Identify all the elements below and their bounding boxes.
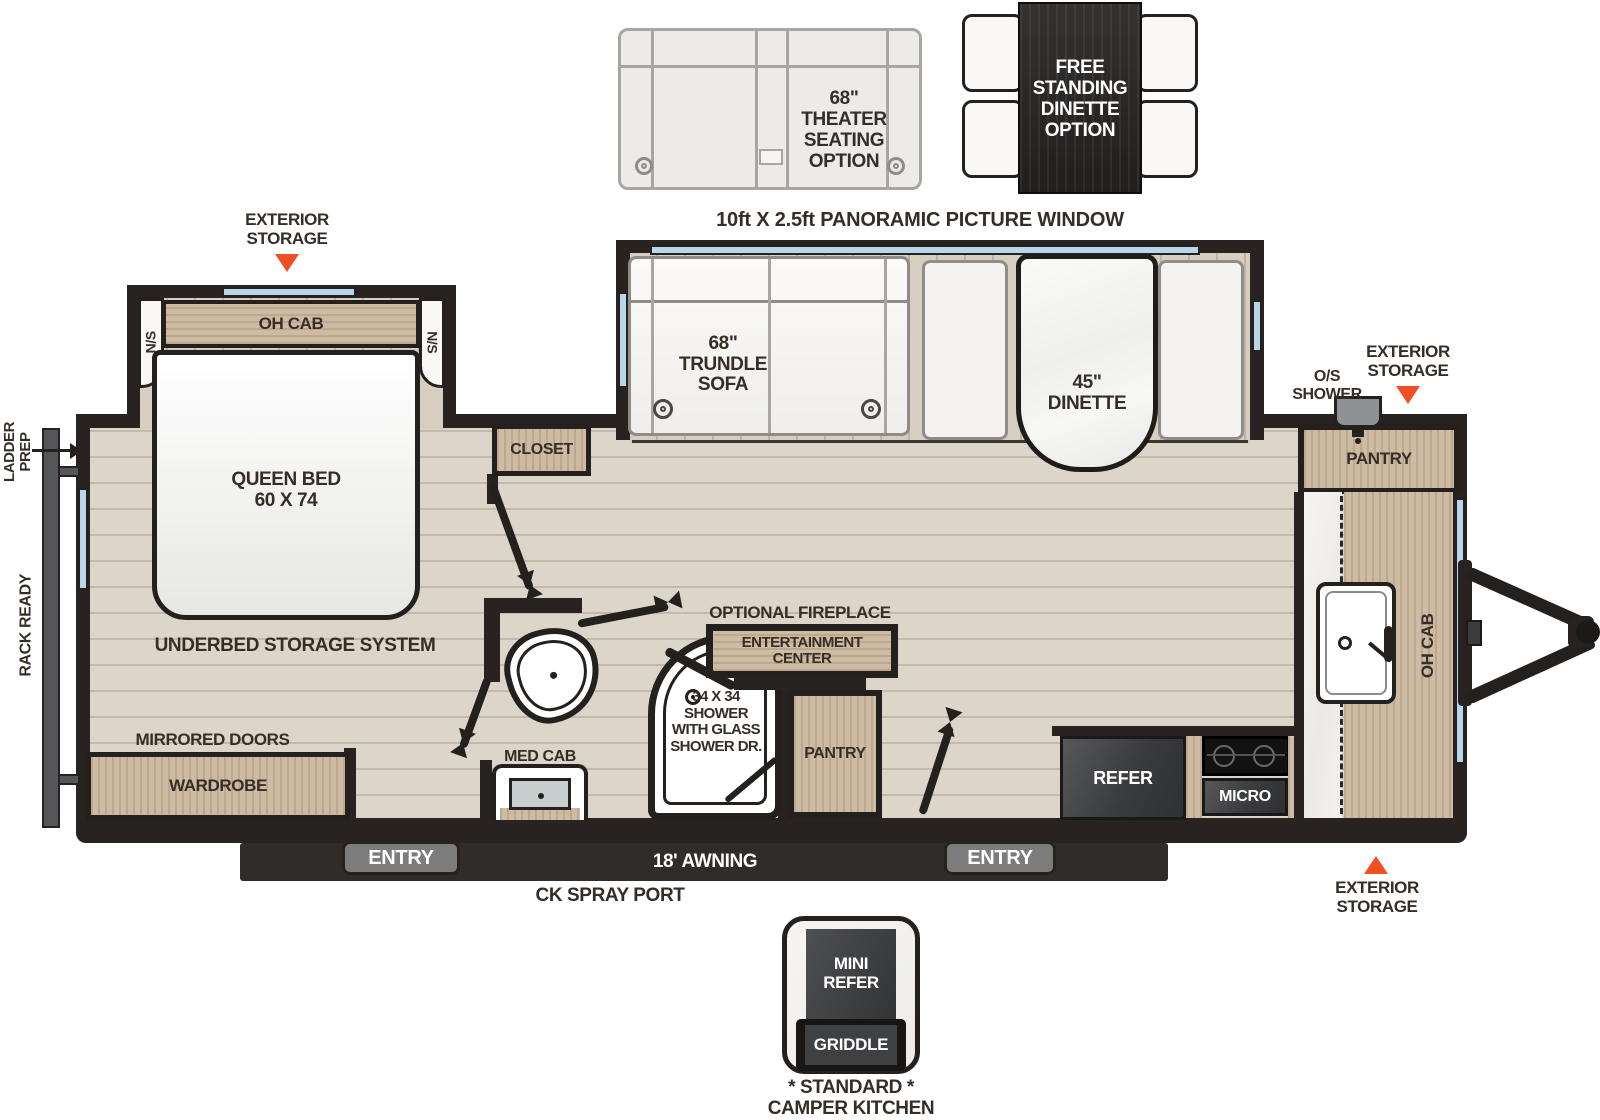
sofa-armrest-line xyxy=(884,259,887,433)
exterior-storage-label: EXTERIOR STORAGE xyxy=(1361,342,1455,382)
entry-door: ENTRY xyxy=(342,841,460,875)
closet-label: CLOSET xyxy=(510,442,573,459)
queen-bed: QUEEN BED 60 X 74 xyxy=(152,350,420,620)
mini-refer: MINI REFER xyxy=(806,929,896,1019)
dinette-bench xyxy=(1158,260,1244,440)
wall-segment xyxy=(76,414,134,428)
ladder-prep-arrowhead xyxy=(70,443,82,459)
exterior-storage-label: EXTERIOR STORAGE xyxy=(1329,878,1425,918)
tv-stub xyxy=(734,676,866,690)
trundle-sofa: 68" TRUNDLE SOFA xyxy=(628,256,910,436)
slide-floor-edge xyxy=(632,440,1248,443)
tongue-jack xyxy=(1466,620,1482,646)
rack-ready-label: RACK READY xyxy=(19,565,36,685)
dinette-chair xyxy=(962,100,1024,178)
entertainment-center: ENTERTAINMENT CENTER xyxy=(706,624,898,678)
entry-door: ENTRY xyxy=(944,841,1056,875)
exterior-storage-label: EXTERIOR STORAGE xyxy=(240,210,334,250)
microwave: MICRO xyxy=(1202,778,1288,816)
pantry-label: PANTRY xyxy=(804,746,866,763)
wall-segment xyxy=(498,598,582,613)
counter-edge xyxy=(1294,492,1304,818)
panoramic-window-label: 10ft X 2.5ft PANORAMIC PICTURE WINDOW xyxy=(610,210,1230,231)
sink-drain xyxy=(1338,636,1352,650)
front-pantry: PANTRY xyxy=(1298,424,1460,494)
mini-refer-label: MINI REFER xyxy=(823,955,879,992)
outside-shower-faucet xyxy=(1352,428,1364,437)
camper-kitchen-card: MINI REFER GRIDDLE xyxy=(782,916,920,1074)
ck-spray-port-label: CK SPRAY PORT xyxy=(505,886,715,906)
shower-label: 34 X 34 SHOWER WITH GLASS SHOWER DR. xyxy=(658,682,774,762)
window xyxy=(222,287,356,297)
entertainment-center-label: ENTERTAINMENT CENTER xyxy=(713,631,891,671)
hitch-ball xyxy=(1576,620,1600,644)
closet: CLOSET xyxy=(492,424,591,476)
storage-arrow-down xyxy=(275,254,299,272)
kitchen-sink xyxy=(1316,582,1396,704)
queen-bed-label: QUEEN BED 60 X 74 xyxy=(157,465,415,517)
underbed-storage-label: UNDERBED STORAGE SYSTEM xyxy=(150,636,440,656)
medicine-cabinet xyxy=(492,764,588,820)
dinette-chair xyxy=(1136,100,1198,178)
outside-shower-faucet-dot xyxy=(1355,438,1361,444)
dinette-bench xyxy=(922,260,1008,440)
dinette-label: 45" DINETTE xyxy=(1021,359,1153,429)
dinette-table: 45" DINETTE xyxy=(1016,254,1158,472)
console-cupholder xyxy=(759,149,783,165)
rack-bracket xyxy=(58,466,80,477)
mirrored-doors-label: MIRRORED DOORS xyxy=(120,731,305,749)
rear-rack xyxy=(42,428,60,828)
sofa-back-split xyxy=(768,259,771,303)
griddle-frame: GRIDDLE xyxy=(796,1019,906,1071)
theater-seating-label: 68" THEATER SEATING OPTION xyxy=(781,81,907,181)
storage-arrow-down xyxy=(1396,386,1420,404)
wardrobe: WARDROBE xyxy=(86,752,350,820)
optional-fireplace-label: OPTIONAL FIREPLACE xyxy=(698,604,902,622)
refrigerator: REFER xyxy=(1060,736,1186,820)
cupholder-icon xyxy=(861,399,881,419)
storage-arrow-up xyxy=(1364,856,1388,874)
os-shower-label: O/S SHOWER xyxy=(1282,366,1372,406)
wall-segment xyxy=(480,760,492,818)
rack-bracket xyxy=(58,774,80,785)
wardrobe-label: WARDROBE xyxy=(169,777,267,795)
dinette-table: FREE STANDING DINETTE OPTION xyxy=(1018,2,1142,194)
bedroom-overhead-cabinet: OH CAB xyxy=(162,300,420,348)
window xyxy=(1252,300,1262,352)
window xyxy=(618,292,628,388)
front-pantry-label: PANTRY xyxy=(1346,450,1412,468)
rv-floorplan: 68" THEATER SEATING OPTION FREE STANDING… xyxy=(0,0,1600,1120)
ladder-prep-label: LADDER PREP xyxy=(0,422,40,482)
wall-segment xyxy=(76,818,1467,843)
front-oh-cab-label: OH CAB xyxy=(1419,602,1437,690)
counter-edge xyxy=(1052,726,1304,736)
cupholder-icon xyxy=(635,157,653,175)
theater-seating-option: 68" THEATER SEATING OPTION xyxy=(618,28,922,190)
free-standing-dinette-option: FREE STANDING DINETTE OPTION xyxy=(958,0,1202,196)
oh-cab-label: OH CAB xyxy=(259,315,324,333)
free-dinette-label: FREE STANDING DINETTE OPTION xyxy=(1020,50,1140,150)
ladder-prep-arrow xyxy=(32,449,72,452)
camper-kitchen-caption: * STANDARD * CAMPER KITCHEN xyxy=(766,1080,936,1118)
cooktop xyxy=(1202,736,1290,776)
awning-label: 18' AWNING xyxy=(600,852,810,872)
cabinet-strip xyxy=(1186,736,1202,818)
griddle: GRIDDLE xyxy=(805,1025,897,1065)
trundle-sofa-label: 68" TRUNDLE SOFA xyxy=(653,323,793,407)
mirror xyxy=(509,778,571,810)
nightstand-label: N/S xyxy=(425,318,440,366)
dinette-chair xyxy=(962,14,1024,92)
window xyxy=(78,488,88,590)
mid-pantry: PANTRY xyxy=(788,690,882,818)
dinette-chair xyxy=(1136,14,1198,92)
